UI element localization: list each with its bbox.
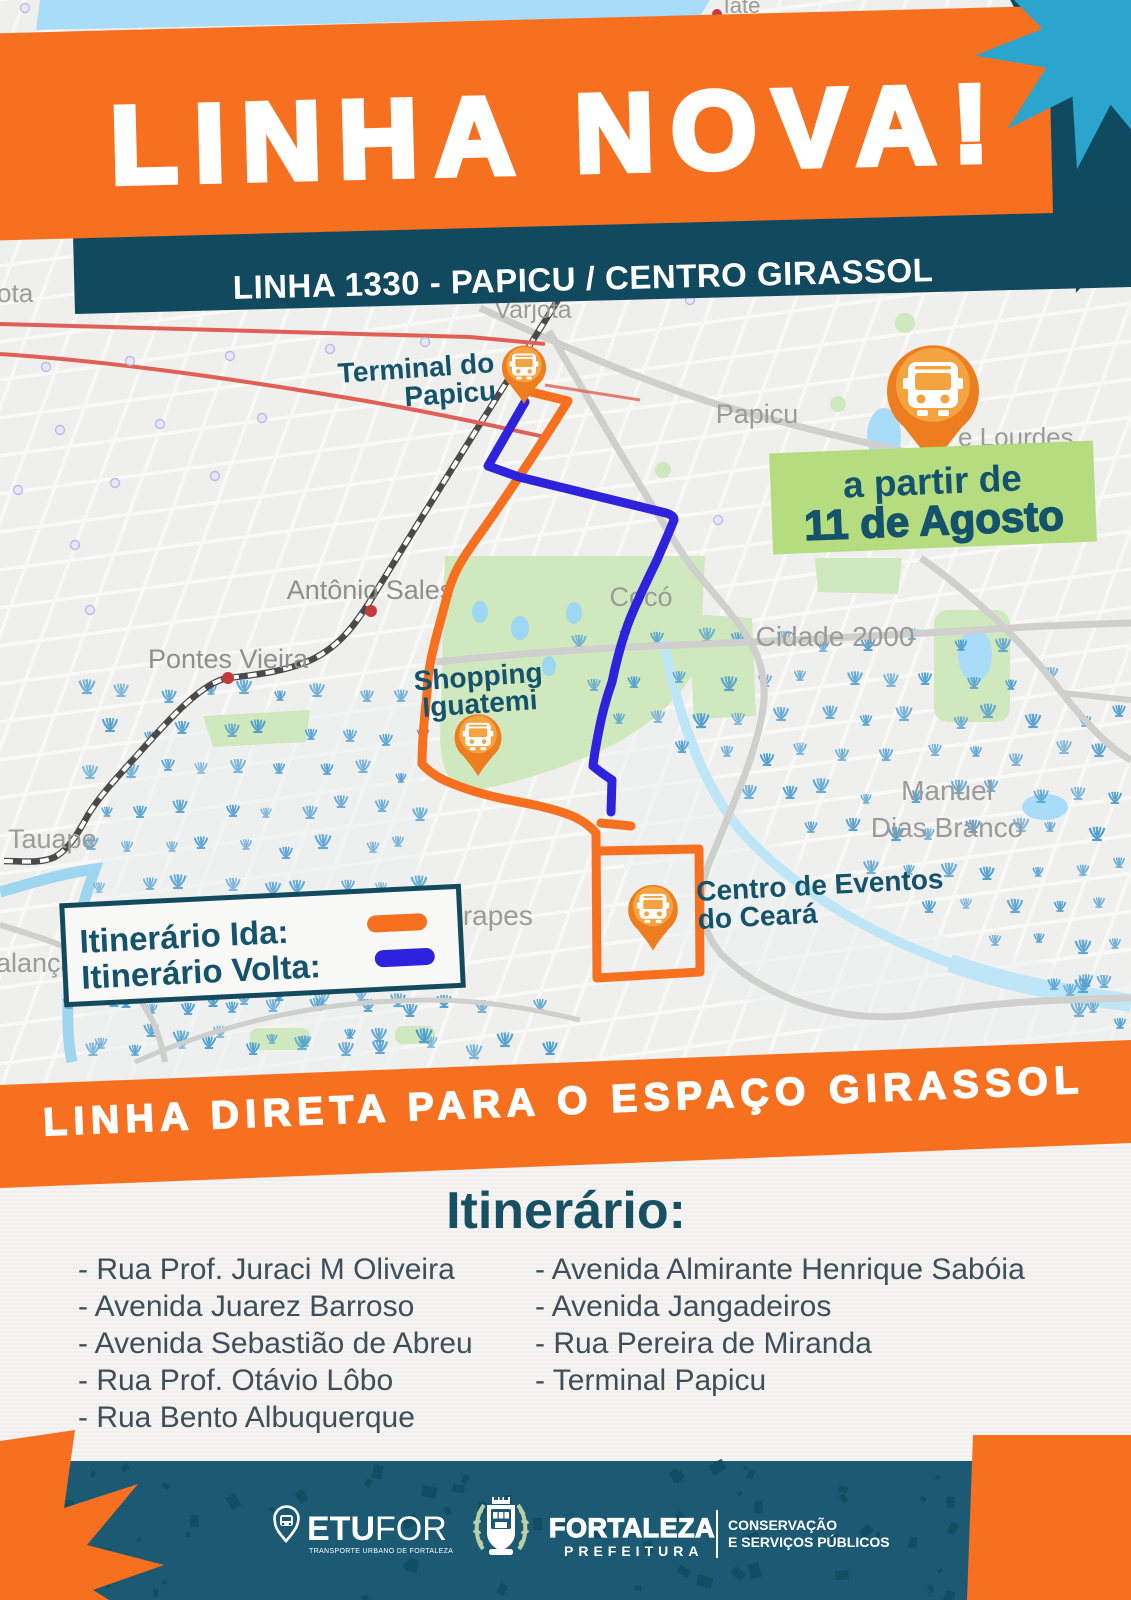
svg-text:- Avenida Almirante Henrique S: - Avenida Almirante Henrique Sabóia bbox=[535, 1253, 1025, 1286]
svg-text:- Avenida Sebastião de Abreu: - Avenida Sebastião de Abreu bbox=[78, 1327, 473, 1360]
svg-text:Aldeota: Aldeota bbox=[0, 278, 34, 308]
svg-text:Pontes Vieira: Pontes Vieira bbox=[148, 644, 309, 674]
svg-text:LINHA NOVA!: LINHA NOVA! bbox=[109, 62, 1008, 208]
svg-text:Itinerário:: Itinerário: bbox=[446, 1182, 686, 1240]
svg-text:TRANSPORTE URBANO DE FORTALEZA: TRANSPORTE URBANO DE FORTALEZA bbox=[309, 1548, 453, 1555]
svg-text:FORTALEZA: FORTALEZA bbox=[549, 1513, 715, 1543]
svg-text:Papicu: Papicu bbox=[403, 375, 497, 412]
svg-text:CONSERVAÇÃO: CONSERVAÇÃO bbox=[728, 1516, 837, 1533]
svg-text:- Rua Bento Albuquerque: - Rua Bento Albuquerque bbox=[78, 1401, 415, 1434]
svg-text:ETUFOR: ETUFOR bbox=[307, 1510, 447, 1548]
svg-text:Antônio Sales: Antônio Sales bbox=[287, 575, 454, 605]
svg-text:- Avenida Jangadeiros: - Avenida Jangadeiros bbox=[535, 1290, 831, 1323]
svg-text:Tauape: Tauape bbox=[8, 824, 97, 854]
svg-text:Cidade 2000: Cidade 2000 bbox=[756, 621, 915, 652]
svg-text:Manuel: Manuel bbox=[901, 775, 993, 806]
svg-text:- Rua Prof. Juraci M Oliveira: - Rua Prof. Juraci M Oliveira bbox=[78, 1253, 455, 1286]
svg-text:do Ceará: do Ceará bbox=[697, 898, 819, 935]
svg-text:PREFEITURA: PREFEITURA bbox=[564, 1543, 703, 1559]
svg-text:- Rua Prof. Otávio Lôbo: - Rua Prof. Otávio Lôbo bbox=[78, 1364, 393, 1397]
svg-text:Dias Branco: Dias Branco bbox=[871, 812, 1024, 843]
svg-text:- Terminal Papicu: - Terminal Papicu bbox=[535, 1364, 766, 1397]
svg-text:- Rua Pereira de Miranda: - Rua Pereira de Miranda bbox=[535, 1327, 872, 1360]
svg-text:E SERVIÇOS PÚBLICOS: E SERVIÇOS PÚBLICOS bbox=[728, 1533, 890, 1550]
svg-text:Papicu: Papicu bbox=[716, 399, 799, 429]
svg-text:- Avenida Juarez Barroso: - Avenida Juarez Barroso bbox=[78, 1290, 414, 1323]
